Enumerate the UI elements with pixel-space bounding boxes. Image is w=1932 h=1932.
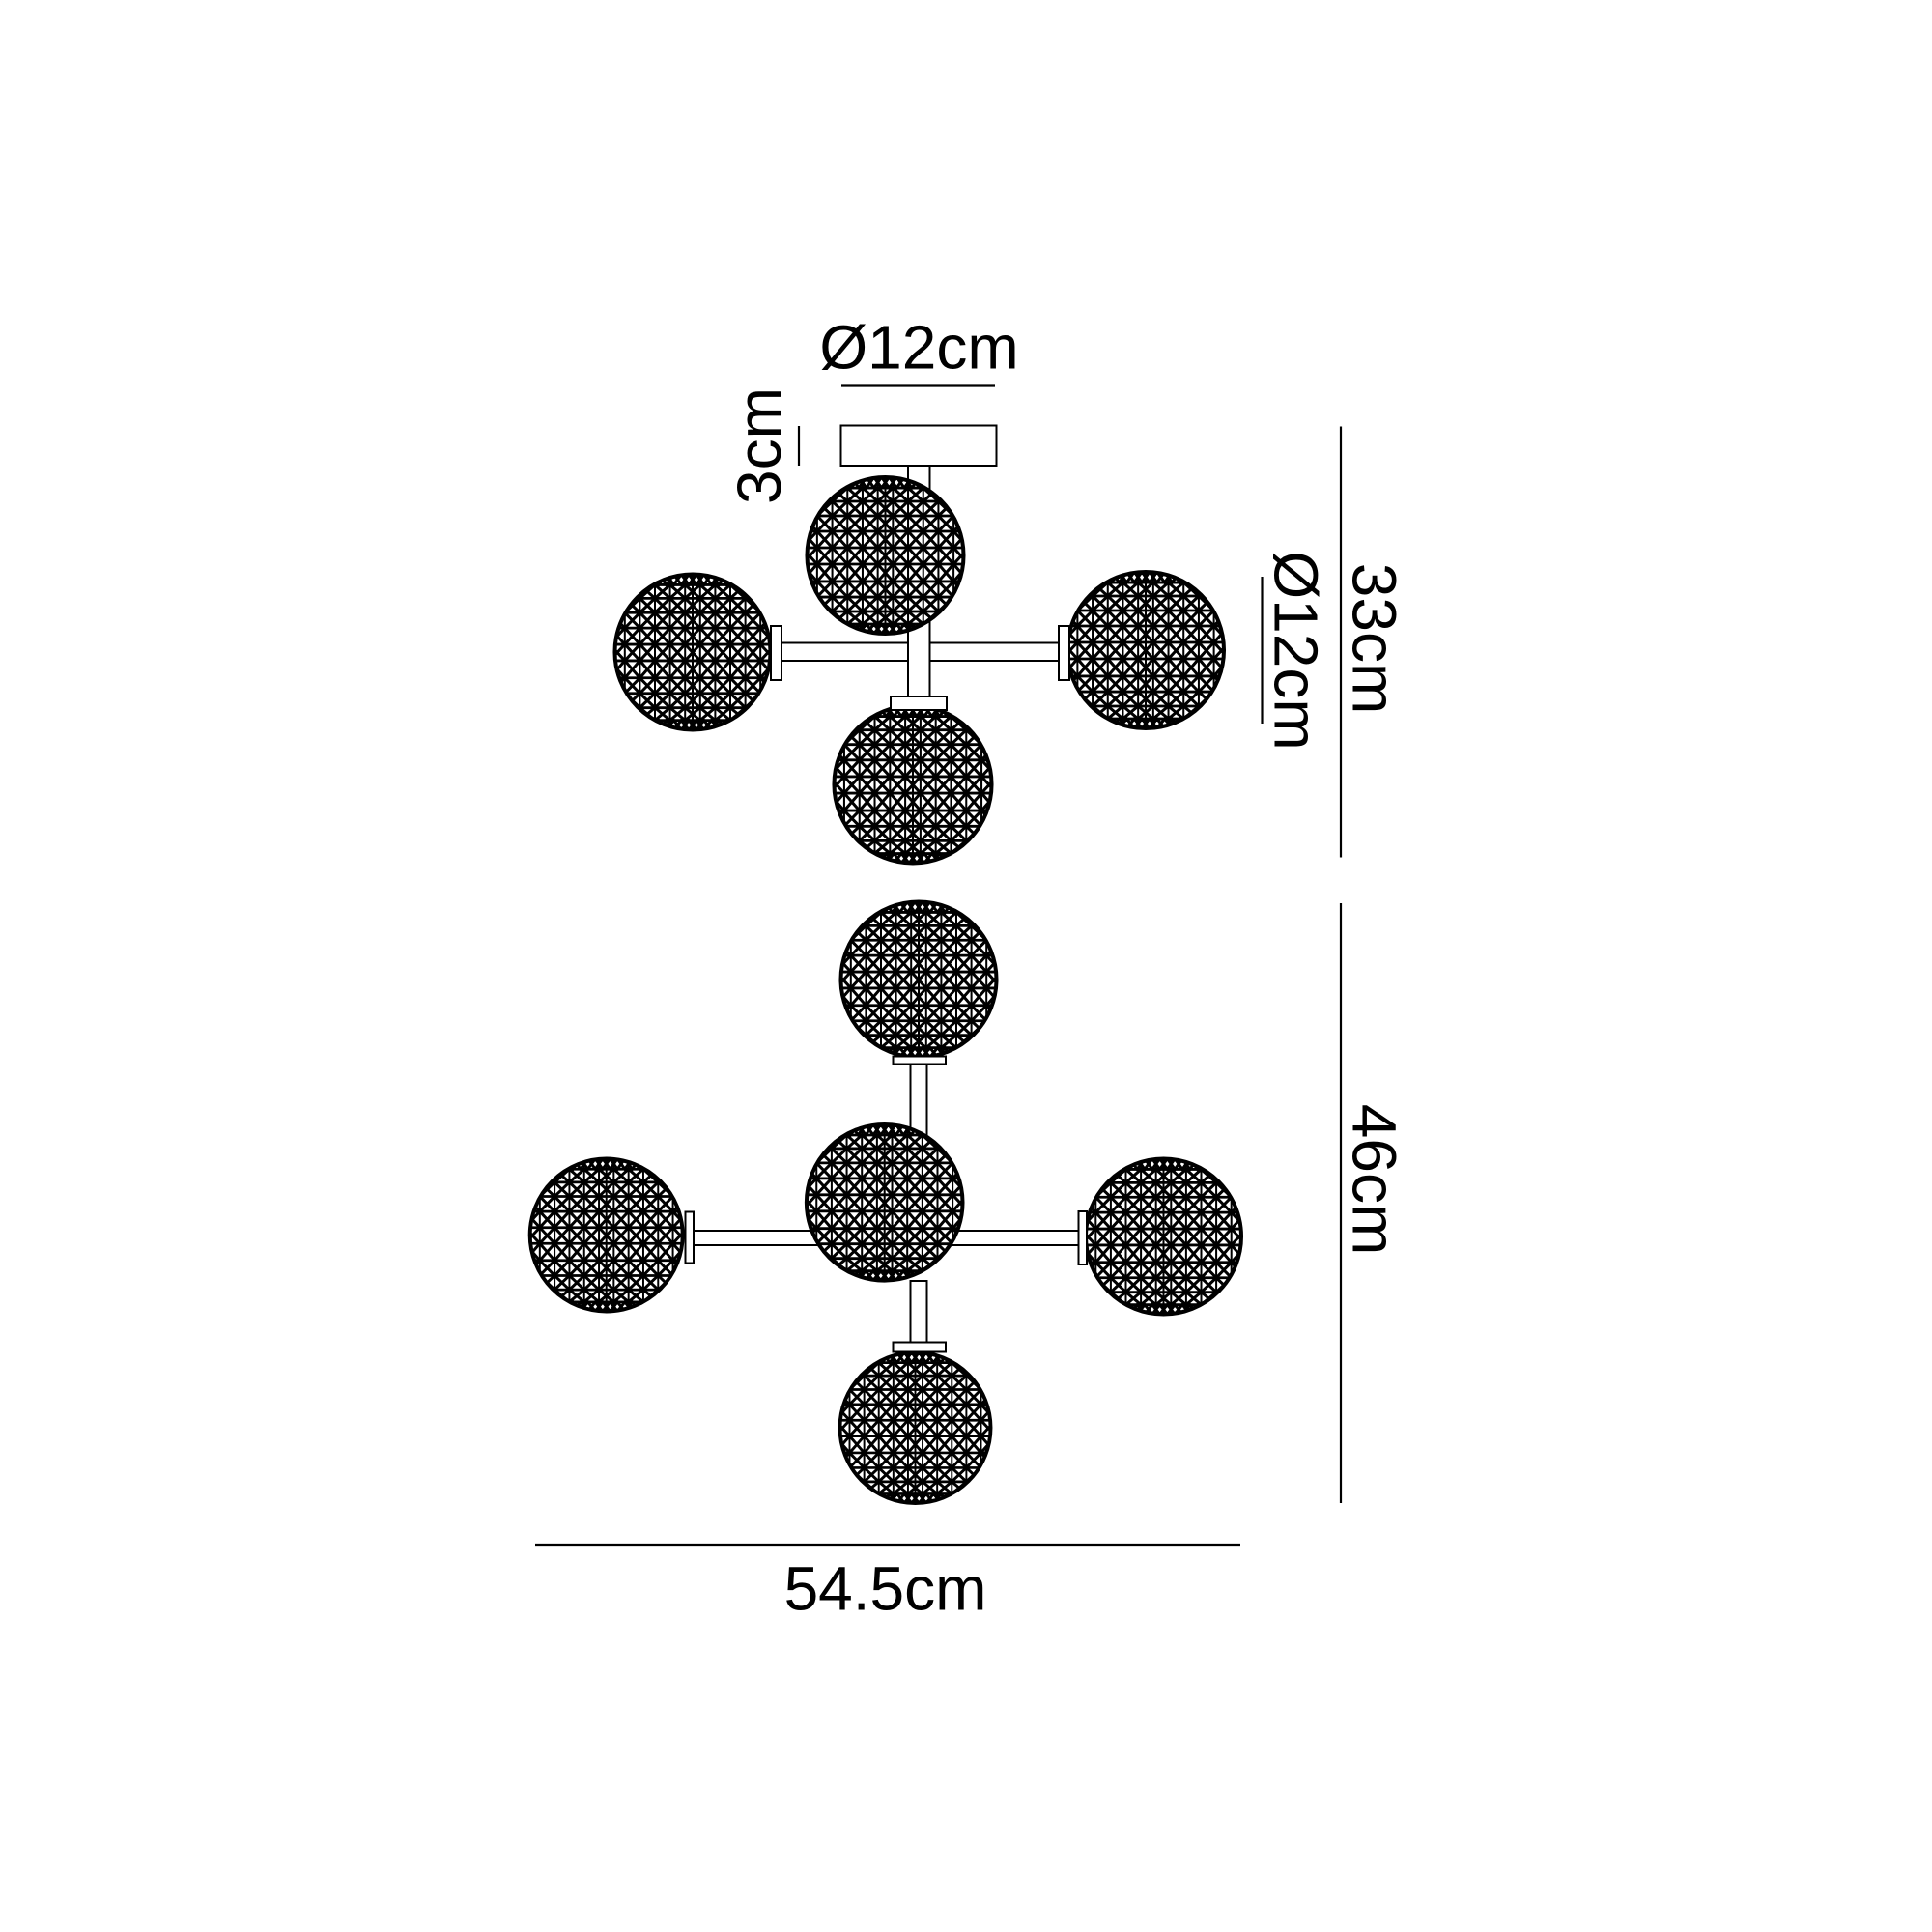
svg-text:Ø12cm: Ø12cm [819,313,1018,383]
svg-text:Ø12cm: Ø12cm [1262,551,1331,750]
svg-text:3cm: 3cm [724,387,794,504]
svg-text:33cm: 33cm [1340,563,1409,715]
svg-text:54.5cm: 54.5cm [784,1554,987,1624]
svg-text:46cm: 46cm [1340,1104,1409,1256]
